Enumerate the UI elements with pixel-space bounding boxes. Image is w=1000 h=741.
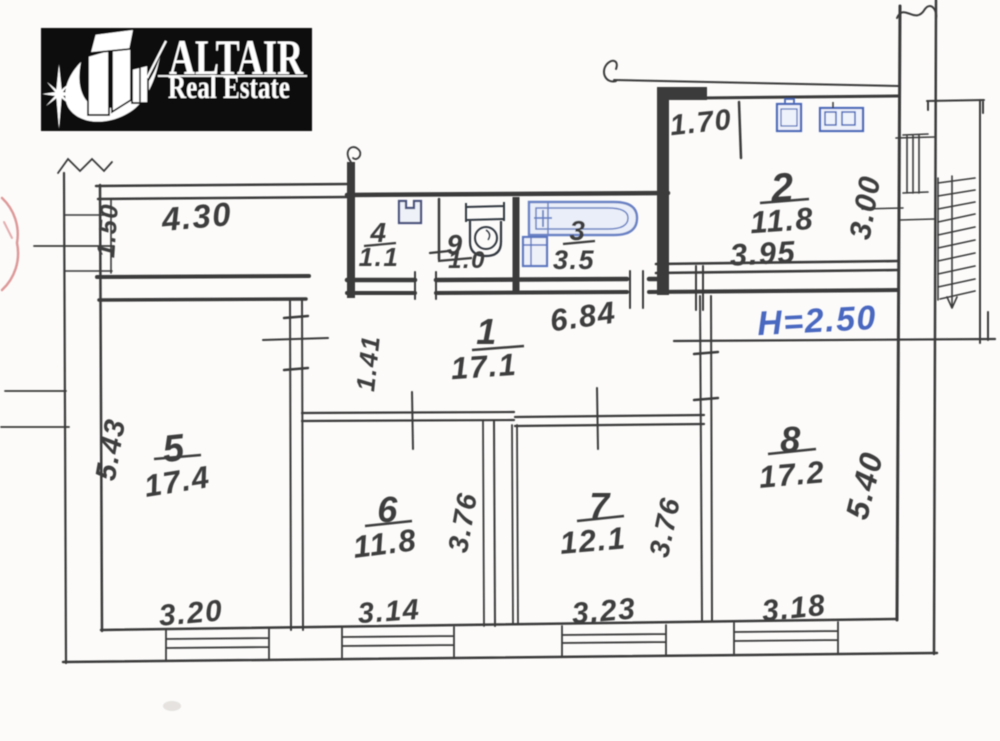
svg-text:17.1: 17.1	[450, 347, 519, 387]
svg-text:3.14: 3.14	[357, 594, 422, 630]
svg-text:3.5: 3.5	[553, 245, 595, 275]
svg-text:1.1: 1.1	[359, 242, 400, 272]
svg-text:3.95: 3.95	[729, 234, 797, 272]
svg-text:1: 1	[476, 311, 498, 352]
svg-text:3.23: 3.23	[571, 592, 638, 630]
svg-text:3.20: 3.20	[158, 594, 225, 632]
svg-text:12.1: 12.1	[558, 520, 627, 561]
svg-text:3.18: 3.18	[760, 589, 827, 629]
svg-text:4.30: 4.30	[159, 195, 233, 238]
svg-text:Real Estate: Real Estate	[168, 70, 290, 106]
svg-text:1.0: 1.0	[448, 247, 486, 274]
svg-text:1.70: 1.70	[668, 104, 733, 142]
svg-text:1.50: 1.50	[92, 202, 124, 258]
svg-text:8: 8	[780, 419, 802, 460]
svg-text:17.2: 17.2	[757, 454, 826, 495]
svg-text:H=2.50: H=2.50	[756, 299, 877, 343]
svg-text:1.41: 1.41	[350, 333, 386, 392]
